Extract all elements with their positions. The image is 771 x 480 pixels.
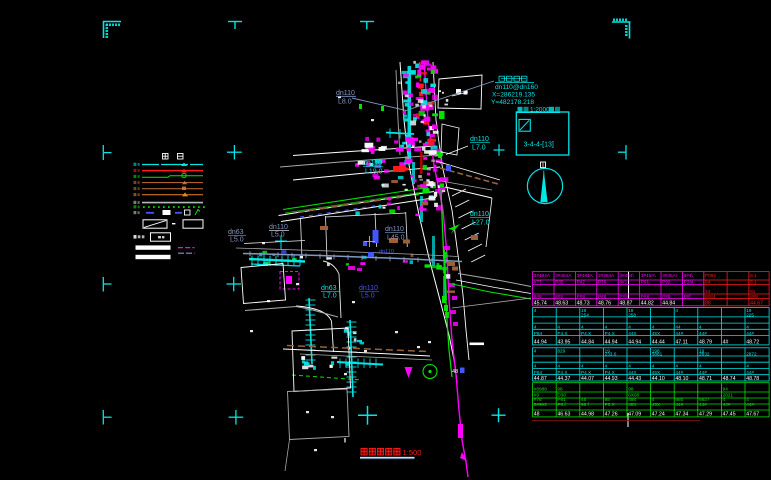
svg-text:44X: 44X [628,331,637,336]
svg-text:L7.0: L7.0 [323,293,337,300]
svg-text:225: 225 [746,312,754,317]
svg-text:44#: 44# [723,402,731,407]
svg-text:44.93: 44.93 [605,376,618,382]
svg-text:P42: P42 [577,280,586,285]
svg-text:44.84: 44.84 [662,300,675,306]
svg-text:8#8: 8#8 [534,294,542,299]
svg-text:48.10: 48.10 [675,376,688,382]
svg-text:829: 829 [557,348,565,353]
svg-text:8.1: 8.1 [750,280,757,285]
svg-text:P85: P85 [555,280,564,285]
svg-text:8#8: 8#8 [750,294,758,299]
svg-text:4#1: 4#1 [619,280,627,285]
svg-text:46.63: 46.63 [557,411,570,417]
svg-text:4: 4 [699,364,702,369]
svg-text:44.10: 44.10 [652,376,665,382]
svg-text:84: 84 [705,280,711,285]
svg-text:48.79: 48.79 [699,339,712,345]
svg-text:44.44: 44.44 [652,339,665,345]
svg-text:4: 4 [699,324,702,329]
svg-text:4: 4 [581,324,584,329]
svg-text:3#45A\: 3#45A\ [641,273,657,278]
svg-text:2872: 2872 [746,352,757,357]
svg-text:4: 4 [534,308,537,313]
svg-text:4: 4 [557,364,560,369]
svg-text:P#8: P#8 [598,294,607,299]
svg-text:47.24: 47.24 [652,411,665,417]
svg-text:47.34: 47.34 [675,411,688,417]
svg-text:8#9#2: 8#9#2 [534,402,547,407]
svg-text:3#484\: 3#484\ [619,273,634,278]
svg-text:48.73: 48.73 [577,300,590,306]
svg-text:44.43: 44.43 [628,376,641,382]
svg-text:48.78: 48.78 [746,376,759,382]
svg-text:P84: P84 [534,370,543,375]
svg-text:L7.0: L7.0 [472,145,486,152]
svg-text:#77: #77 [534,280,542,285]
svg-text:47.45: 47.45 [723,411,736,417]
svg-text:P4.X: P4.X [581,370,592,375]
svg-text:47.11: 47.11 [675,339,688,345]
svg-text:3#484A: 3#484A [555,273,572,278]
svg-text:44: 44 [675,324,681,329]
svg-text:P5.X: P5.X [605,402,616,407]
svg-text:L8.0: L8.0 [338,99,352,106]
svg-text:P092: P092 [705,273,716,278]
svg-text:P4.X: P4.X [557,331,568,336]
svg-text:P4.X: P4.X [605,331,616,336]
svg-text:9.1: 9.1 [750,273,757,278]
svg-text:4: 4 [628,324,631,329]
svg-text:44.94: 44.94 [628,339,641,345]
svg-text:1:500: 1:500 [403,448,422,457]
svg-text:2832: 2832 [699,352,710,357]
svg-text:P84: P84 [534,331,543,336]
svg-text:dn110: dn110 [379,249,394,255]
svg-text:3881: 3881 [652,352,663,357]
svg-text:3#484A: 3#484A [534,273,551,278]
svg-text:L5.0: L5.0 [271,232,285,239]
svg-text:45X: 45X [652,370,661,375]
svg-text:44.87: 44.87 [534,376,547,382]
svg-text:48.71: 48.71 [699,376,712,382]
svg-text:3-4-4-[13]: 3-4-4-[13] [524,142,554,149]
svg-text:8#8: 8#8 [555,294,563,299]
svg-text:4: 4 [746,324,749,329]
svg-text:4: 4 [534,348,537,353]
svg-text:4#: 4# [723,339,729,345]
svg-text:P4.X: P4.X [581,331,592,336]
svg-text:4: 4 [675,308,678,313]
svg-text:45.74: 45.74 [534,300,547,306]
svg-text:P2/4: P2/4 [684,280,694,285]
svg-text:3#484A: 3#484A [577,273,594,278]
svg-text:3#45A\: 3#45A\ [662,273,678,278]
svg-text:44#: 44# [699,370,707,375]
svg-text:P#f: P#f [684,294,692,299]
svg-text:L27.0: L27.0 [472,220,490,227]
svg-text:44#: 44# [746,402,754,407]
svg-text:48.74: 48.74 [723,376,736,382]
svg-text:4: 4 [675,364,678,369]
svg-text:4: 4 [746,364,749,369]
svg-text:4: 4 [652,364,655,369]
svg-text:4: 4 [581,364,584,369]
svg-text:44#: 44# [675,402,683,407]
svg-text:L19.0: L19.0 [365,169,383,176]
svg-text:258: 258 [628,312,636,317]
svg-text:4: 4 [628,364,631,369]
svg-text:47.26: 47.26 [605,411,618,417]
svg-text:44.84: 44.84 [581,339,594,345]
svg-text:254: 254 [581,312,589,317]
svg-text:P#8: P#8 [662,294,671,299]
svg-text:44.94: 44.94 [605,339,618,345]
svg-text:44#: 44# [699,331,707,336]
svg-text:98: 98 [628,386,634,391]
svg-text:3#4\: 3#4\ [684,273,694,278]
svg-text:44#: 44# [746,370,754,375]
svg-text:4: 4 [557,324,560,329]
svg-text:43.95: 43.95 [557,339,570,345]
svg-text:233.0: 233.0 [605,352,617,357]
svg-text:L5.0: L5.0 [361,293,375,300]
svg-text:45X: 45X [652,402,661,407]
svg-text:dn110@dn160: dn110@dn160 [495,84,538,91]
svg-text:44.37: 44.37 [557,376,570,382]
svg-text:98: 98 [557,386,563,391]
svg-text:48.76: 48.76 [598,300,611,306]
svg-text:48X: 48X [628,402,637,407]
svg-text:44X: 44X [628,370,637,375]
svg-text:Y=482178.218: Y=482178.218 [491,99,534,106]
svg-text:P8.f: P8.f [557,402,566,407]
svg-text:4: 4 [605,324,608,329]
svg-text:44#: 44# [675,331,683,336]
svg-text:P79: P79 [598,280,607,285]
svg-text:44.94: 44.94 [534,339,547,345]
svg-text:4: 4 [652,324,655,329]
svg-text:94: 94 [723,386,729,391]
svg-text:48: 48 [452,369,458,375]
svg-text:L45.0: L45.0 [387,235,405,242]
svg-text:#8988: #8988 [534,386,547,391]
svg-text:44#: 44# [699,402,707,407]
svg-text:88: 88 [705,300,711,306]
svg-text:P4.X: P4.X [557,370,568,375]
svg-text:P#8: P#8 [641,294,650,299]
svg-text:P4.X: P4.X [605,370,616,375]
svg-text:48: 48 [534,411,540,417]
svg-text:4: 4 [605,364,608,369]
svg-text:98.f: 98.f [581,402,590,407]
svg-text:P91: P91 [641,280,650,285]
svg-text:44#: 44# [675,370,683,375]
svg-text:3#484A: 3#484A [598,273,615,278]
svg-text:L5.0: L5.0 [230,237,244,244]
svg-text:44#: 44# [746,331,754,336]
svg-text:P92: P92 [662,280,671,285]
svg-text:44.07: 44.07 [581,376,594,382]
svg-text:48.87: 48.87 [619,300,632,306]
svg-text:44.82: 44.82 [641,300,654,306]
svg-text:47.09: 47.09 [628,411,641,417]
svg-text:4: 4 [534,364,537,369]
svg-text:P#8: P#8 [577,294,586,299]
svg-text:8#84: 8#84 [705,294,716,299]
svg-text:X=286219.135: X=286219.135 [492,92,535,99]
svg-text:4: 4 [534,324,537,329]
svg-text:47.29: 47.29 [699,411,712,417]
svg-text:45X: 45X [652,331,661,336]
svg-text:44.67: 44.67 [750,300,763,306]
svg-text:48.63: 48.63 [555,300,568,306]
svg-text:47.67: 47.67 [746,411,759,417]
svg-text:P#8: P#8 [619,294,628,299]
svg-text:48.72: 48.72 [746,339,759,345]
svg-text:44.98: 44.98 [581,411,594,417]
